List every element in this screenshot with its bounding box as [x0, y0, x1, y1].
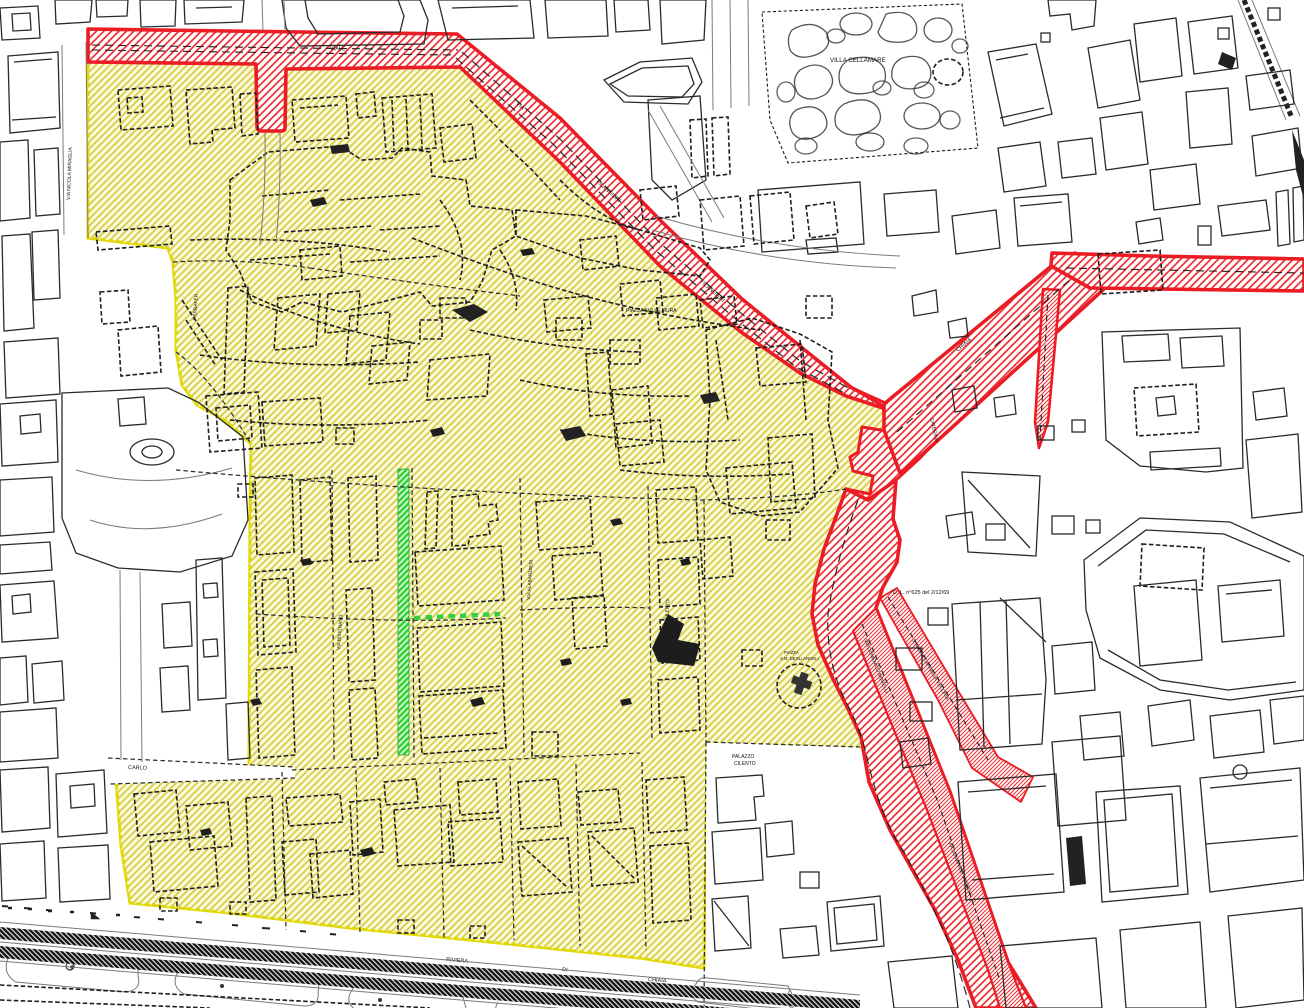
svg-text:PALAZZO: PALAZZO [732, 754, 755, 760]
svg-text:PIAZZA SULLE MURA: PIAZZA SULLE MURA [626, 308, 677, 314]
svg-text:VILLA CELLAMARE: VILLA CELLAMARE [830, 57, 886, 64]
svg-text:D. L. n°625 del 2/12/69: D. L. n°625 del 2/12/69 [893, 590, 949, 596]
svg-text:S.M. DEGLI ANGELI: S.M. DEGLI ANGELI [780, 656, 819, 661]
svg-text:CILENTO: CILENTO [734, 761, 756, 767]
svg-text:VIALE: VIALE [330, 46, 346, 52]
svg-text:CARLO: CARLO [128, 765, 148, 772]
svg-text:PIAZZA: PIAZZA [784, 650, 799, 655]
